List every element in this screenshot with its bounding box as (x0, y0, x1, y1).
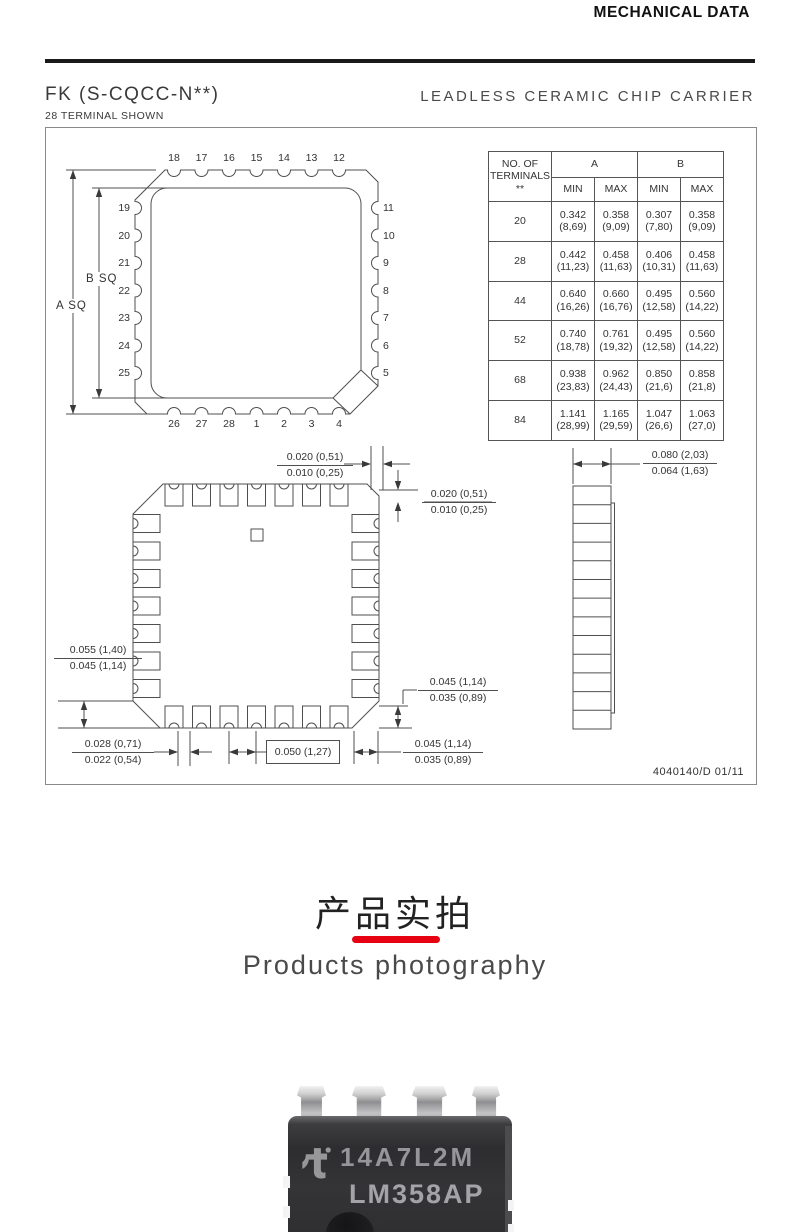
pin-number: 2 (274, 418, 294, 430)
pin-number: 6 (383, 340, 403, 352)
table-cell: 0.858(21,8) (681, 361, 724, 401)
pin-number: 22 (110, 285, 130, 297)
dim-corner-clearance: 0.028 (0,71) 0.022 (0,54) (72, 738, 154, 767)
datasheet-page: MECHANICAL DATA FK (S-CQCC-N**) LEADLESS… (0, 0, 790, 1232)
table-cell: 0.458(11,63) (595, 241, 638, 281)
chip-edge-notch (283, 1206, 290, 1218)
pin-number: 20 (110, 230, 130, 242)
table-cell: 0.962(24,43) (595, 361, 638, 401)
table-cell: 0.358(9,09) (681, 202, 724, 242)
table-cell: 0.458(11,63) (681, 241, 724, 281)
table-cell: 0.761(19,32) (595, 321, 638, 361)
table-cell: 0.740(18,78) (552, 321, 595, 361)
dim-pad-length: 0.055 (1,40) 0.045 (1,14) (54, 644, 142, 673)
table-cell: 0.850(21,6) (638, 361, 681, 401)
table-header-a-min: MIN (552, 178, 595, 202)
pin-number: 24 (110, 340, 130, 352)
pin-number: 4 (329, 418, 349, 430)
pin-number: 19 (110, 202, 130, 214)
table-cell: 0.442(11,23) (552, 241, 595, 281)
table-cell: 1.165(29,59) (595, 400, 638, 440)
chip-marking-lot: 14A7L2M (340, 1142, 475, 1173)
pin-number: 12 (329, 152, 349, 164)
section-title-cn: 产品实拍 (0, 885, 790, 937)
pin-number: 18 (164, 152, 184, 164)
table-cell: 0.307(7,80) (638, 202, 681, 242)
pin-number: 25 (110, 367, 130, 379)
section-underline (352, 936, 440, 943)
table-header-a-max: MAX (595, 178, 638, 202)
table-header-a: A (552, 152, 638, 178)
pin-number: 17 (192, 152, 212, 164)
chip-edge-notch (508, 1224, 514, 1232)
doc-number: 4040140/D 01/11 (653, 766, 744, 778)
table-cell: 44 (489, 281, 552, 321)
pin-number: 14 (274, 152, 294, 164)
table-row: 841.141(28,99)1.165(29,59)1.047(26,6)1.0… (489, 400, 724, 440)
page-title: MECHANICAL DATA (594, 4, 750, 22)
pin-number: 7 (383, 312, 403, 324)
package-type: LEADLESS CERAMIC CHIP CARRIER (420, 88, 755, 105)
dim-lead-width-side: 0.020 (0,51) 0.010 (0,25) (422, 488, 496, 517)
table-header-b: B (638, 152, 724, 178)
table-row: 280.442(11,23)0.458(11,63)0.406(10,31)0.… (489, 241, 724, 281)
pin-number: 16 (219, 152, 239, 164)
package-code: FK (S-CQCC-N**) (45, 84, 220, 106)
table-row: 680.938(23,83)0.962(24,43)0.850(21,6)0.8… (489, 361, 724, 401)
table-header-terminals: NO. OF TERMINALS ** (489, 152, 552, 202)
ti-logo-icon (301, 1145, 333, 1179)
pin-number: 13 (302, 152, 322, 164)
header-rule (45, 59, 755, 63)
dim-a-sq-label: A SQ (54, 299, 89, 313)
pin-number: 9 (383, 257, 403, 269)
table-cell: 0.938(23,83) (552, 361, 595, 401)
pin-number: 27 (192, 418, 212, 430)
pin-number: 1 (247, 418, 267, 430)
dim-edge-clearance: 0.045 (1,14) 0.035 (0,89) (403, 738, 483, 767)
table-cell: 0.358(9,09) (595, 202, 638, 242)
table-cell: 0.560(14,22) (681, 321, 724, 361)
package-terminals-note: 28 TERMINAL SHOWN (45, 110, 164, 122)
pin-number: 11 (383, 202, 403, 214)
table-cell: 0.660(16,76) (595, 281, 638, 321)
pin-number: 21 (110, 257, 130, 269)
pin-number: 15 (247, 152, 267, 164)
table-cell: 1.047(26,6) (638, 400, 681, 440)
table-cell: 0.495(12,58) (638, 281, 681, 321)
table-cell: 0.406(10,31) (638, 241, 681, 281)
table-cell: 0.342(8,69) (552, 202, 595, 242)
dim-pad-width: 0.045 (1,14) 0.035 (0,89) (418, 676, 498, 705)
pin-number: 23 (110, 312, 130, 324)
table-row: 440.640(16,26)0.660(16,76)0.495(12,58)0.… (489, 281, 724, 321)
dim-pitch: 0.050 (1,27) (266, 740, 340, 764)
table-cell: 68 (489, 361, 552, 401)
table-cell: 1.063(27,0) (681, 400, 724, 440)
table-cell: 0.495(12,58) (638, 321, 681, 361)
table-cell: 28 (489, 241, 552, 281)
pin-number: 5 (383, 367, 403, 379)
table-cell: 0.640(16,26) (552, 281, 595, 321)
table-row: 200.342(8,69)0.358(9,09)0.307(7,80)0.358… (489, 202, 724, 242)
dimensions-table: NO. OF TERMINALS ** A B MIN MAX MIN MAX … (488, 151, 724, 441)
pin-number: 26 (164, 418, 184, 430)
pin-number: 3 (302, 418, 322, 430)
chip-marking-part: LM358AP (349, 1179, 485, 1210)
pin-number: 28 (219, 418, 239, 430)
chip-edge-notch (508, 1200, 514, 1211)
pin-number: 8 (383, 285, 403, 297)
table-cell: 84 (489, 400, 552, 440)
table-cell: 52 (489, 321, 552, 361)
table-row: 520.740(18,78)0.761(19,32)0.495(12,58)0.… (489, 321, 724, 361)
table-cell: 1.141(28,99) (552, 400, 595, 440)
table-header-b-min: MIN (638, 178, 681, 202)
dim-lead-width-top: 0.020 (0,51) 0.010 (0,25) (277, 451, 353, 480)
table-header-b-max: MAX (681, 178, 724, 202)
chip-edge-notch (283, 1176, 290, 1188)
section-title-en: Products photography (0, 950, 790, 981)
table-cell: 20 (489, 202, 552, 242)
dim-side-width: 0.080 (2,03) 0.064 (1,63) (643, 449, 717, 478)
chip-side-face (505, 1126, 512, 1232)
mechanical-drawing: A SQ B SQ 181716151413122627281234192021… (45, 127, 757, 785)
pin-number: 10 (383, 230, 403, 242)
table-cell: 0.560(14,22) (681, 281, 724, 321)
